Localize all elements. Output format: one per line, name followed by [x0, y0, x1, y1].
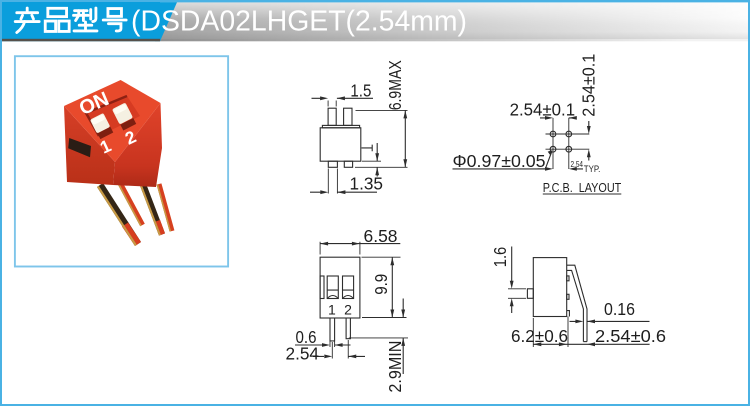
svg-text:2.54±0.1: 2.54±0.1 — [579, 54, 599, 117]
svg-text:1.6: 1.6 — [490, 247, 510, 268]
svg-text:(DSDA02LHGET(2.54mm): (DSDA02LHGET(2.54mm) — [131, 5, 467, 37]
svg-text:1: 1 — [328, 301, 336, 317]
svg-text:0.16: 0.16 — [604, 299, 635, 319]
svg-text:2,54: 2,54 — [571, 160, 584, 169]
svg-text:2.9MIN: 2.9MIN — [385, 341, 405, 393]
svg-text:P.C.B. LAYOUT: P.C.B. LAYOUT — [543, 180, 622, 195]
svg-text:9.9: 9.9 — [371, 274, 391, 295]
svg-text:2: 2 — [344, 301, 352, 317]
svg-text:1.35: 1.35 — [350, 174, 384, 194]
svg-text:2.54±0.6: 2.54±0.6 — [595, 326, 666, 346]
svg-text:1.5: 1.5 — [350, 81, 371, 101]
svg-text:6.9MAX: 6.9MAX — [385, 60, 405, 110]
svg-text:2.54: 2.54 — [286, 344, 320, 364]
svg-text:Φ0.97±0.05: Φ0.97±0.05 — [453, 151, 546, 171]
svg-text:TYP.: TYP. — [584, 164, 601, 175]
svg-text:6.2±0.6: 6.2±0.6 — [511, 326, 568, 346]
svg-text:2.54±0.1: 2.54±0.1 — [510, 99, 575, 119]
svg-text:6.58: 6.58 — [364, 226, 398, 246]
